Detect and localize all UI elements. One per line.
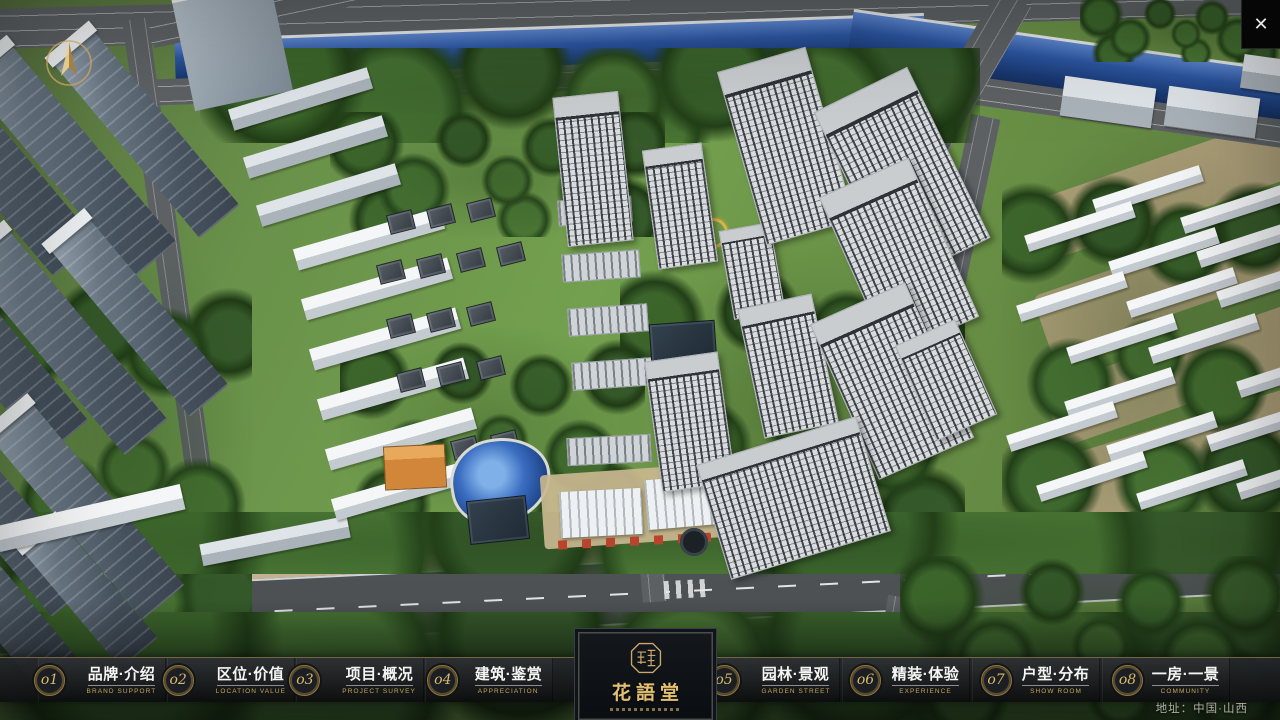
nav-label-zh: 建筑·鉴赏 xyxy=(475,663,543,686)
amenity-building xyxy=(383,443,447,490)
close-icon: ✕ xyxy=(1253,14,1268,35)
nav-label-zh: 园林·景观 xyxy=(762,663,830,686)
entrance-roundabout xyxy=(680,528,708,556)
nav-label-zh: 精装·体验 xyxy=(892,663,960,686)
nav-label-en: LOCATION VALUE xyxy=(215,687,285,694)
nav-item-labels: 品牌·介绍 BRAND SUPPORT xyxy=(73,663,170,697)
nav-item-project[interactable]: o3 项目·概况 PROJECT SURVEY xyxy=(296,658,424,702)
entrance-hall xyxy=(559,488,643,538)
brand-tagline-rule xyxy=(610,708,682,711)
nav-label-zh: 一房·一景 xyxy=(1152,663,1220,686)
app-window: ✕ o1 品牌·介绍 BRAND SUPPORT o2 区位·价值 LOCATI… xyxy=(0,0,1280,720)
nav-number-badge: o8 xyxy=(1112,665,1143,696)
nav-number: o8 xyxy=(1119,672,1136,688)
nav-number-badge: o3 xyxy=(289,665,320,696)
nav-number-badge: o2 xyxy=(163,665,194,696)
chinese-gate-roof xyxy=(466,495,530,545)
nav-item-labels: 一房·一景 COMMUNITY xyxy=(1151,663,1220,697)
nav-number: o7 xyxy=(987,672,1004,688)
nav-number-badge: o5 xyxy=(709,665,740,696)
villa-building xyxy=(466,301,496,327)
brand-seal-icon xyxy=(629,641,663,675)
nav-item-labels: 精装·体验 EXPERIENCE xyxy=(889,663,962,697)
nav-item-garden[interactable]: o5 园林·景观 GARDEN STREET xyxy=(712,658,840,702)
nav-label-zh: 项目·概况 xyxy=(346,663,414,686)
nav-label-zh: 品牌·介绍 xyxy=(88,663,156,686)
nav-number: o2 xyxy=(169,672,186,688)
nav-label-en: APPRECIATION xyxy=(478,687,539,694)
nav-item-interior[interactable]: o6 精装·体验 EXPERIENCE xyxy=(842,658,970,702)
compass-north-icon xyxy=(42,36,96,90)
nav-number: o3 xyxy=(296,672,313,688)
nav-label-en: COMMUNITY xyxy=(1161,687,1211,694)
nav-item-architecture[interactable]: o4 建筑·鉴赏 APPRECIATION xyxy=(425,658,553,702)
nav-number: o1 xyxy=(41,672,58,688)
project-address: 地址：中国·山西 xyxy=(1156,700,1248,716)
nav-item-labels: 区位·价值 LOCATION VALUE xyxy=(202,663,300,697)
midrise-block xyxy=(561,249,641,282)
nav-item-labels: 园林·景观 GARDEN STREET xyxy=(748,663,844,697)
nav-label-en: EXPERIENCE xyxy=(899,687,952,694)
nav-number-badge: o1 xyxy=(34,665,65,696)
brand-title: 花語堂 xyxy=(607,678,684,705)
nav-label-zh: 区位·价值 xyxy=(217,663,285,686)
brand-logo-panel[interactable]: 花語堂 xyxy=(578,632,713,720)
midrise-block xyxy=(571,357,655,391)
masterplan-render xyxy=(0,0,1280,720)
nav-label-zh: 户型·分布 xyxy=(1022,663,1090,686)
villa-building xyxy=(496,241,526,267)
nav-item-location[interactable]: o2 区位·价值 LOCATION VALUE xyxy=(167,658,295,702)
nav-item-labels: 建筑·鉴赏 APPRECIATION xyxy=(466,663,550,697)
nav-item-brand[interactable]: o1 品牌·介绍 BRAND SUPPORT xyxy=(38,658,166,702)
nav-number-badge: o6 xyxy=(850,665,881,696)
close-button[interactable]: ✕ xyxy=(1241,0,1280,49)
nav-number-badge: o4 xyxy=(427,665,458,696)
nav-number: o6 xyxy=(857,672,874,688)
midrise-block xyxy=(566,434,651,466)
nav-number: o5 xyxy=(715,672,732,688)
nav-label-en: BRAND SUPPORT xyxy=(87,687,157,694)
nav-item-labels: 户型·分布 SHOW ROOM xyxy=(1020,663,1092,697)
nav-label-en: PROJECT SURVEY xyxy=(343,687,417,694)
villa-building xyxy=(456,247,486,273)
nav-number: o4 xyxy=(434,672,451,688)
crosswalk xyxy=(664,579,709,599)
nav-item-community[interactable]: o8 一房·一景 COMMUNITY xyxy=(1102,658,1230,702)
nav-label-en: SHOW ROOM xyxy=(1030,687,1082,694)
nav-label-en: GARDEN STREET xyxy=(761,687,830,694)
nav-item-labels: 项目·概况 PROJECT SURVEY xyxy=(328,663,430,697)
nav-item-floorplans[interactable]: o7 户型·分布 SHOW ROOM xyxy=(972,658,1100,702)
midrise-block xyxy=(567,303,649,337)
nav-number-badge: o7 xyxy=(981,665,1012,696)
